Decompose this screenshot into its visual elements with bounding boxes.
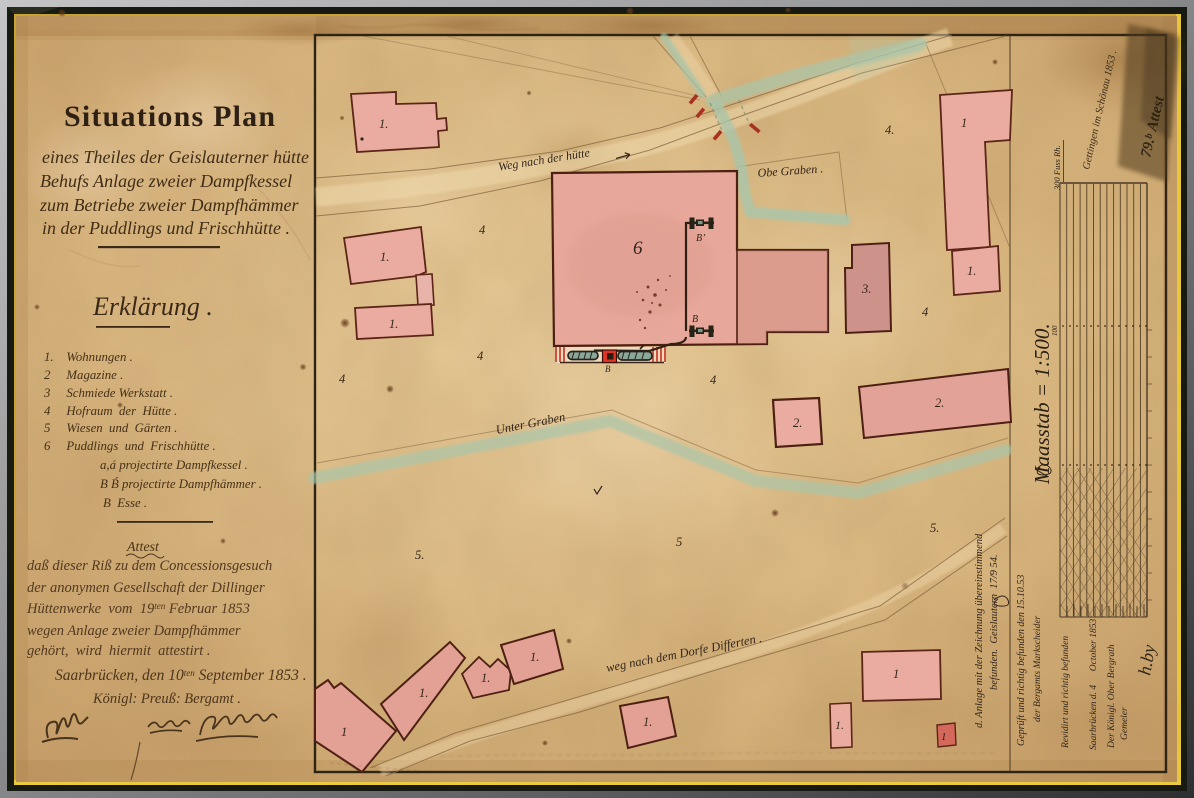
svg-text:Der Königl. Ober Bergrath: Der Königl. Ober Bergrath	[1107, 644, 1117, 749]
svg-text:B: B	[605, 364, 611, 374]
svg-text:befunden. Geislautern 17/9 5: befunden. Geislautern 17/9 54.	[989, 554, 1000, 690]
svg-text:1.: 1.	[481, 671, 490, 685]
svg-text:1.: 1.	[530, 650, 539, 664]
svg-text:October 1853: October 1853	[1089, 618, 1099, 676]
svg-text:der Bergamts Markscheider: der Bergamts Markscheider	[1033, 615, 1043, 722]
svg-text:1.: 1.	[379, 117, 388, 131]
svg-text:2.: 2.	[935, 396, 944, 410]
svg-text:4: 4	[710, 373, 716, 387]
svg-text:5: 5	[676, 535, 682, 549]
svg-text:4: 4	[922, 305, 928, 319]
svg-text:4: 4	[479, 223, 485, 237]
svg-text:2.: 2.	[793, 416, 802, 430]
svg-text:3.: 3.	[861, 282, 871, 296]
svg-text:4: 4	[339, 372, 345, 386]
svg-text:B: B	[692, 314, 698, 325]
svg-text:6: 6	[633, 238, 643, 259]
svg-text:Revidirt und richtig befunden: Revidirt und richtig befunden	[1060, 636, 1071, 749]
svg-text:4: 4	[477, 349, 483, 363]
svg-text:5.: 5.	[415, 548, 424, 562]
svg-text:1: 1	[893, 667, 899, 681]
svg-text:Gemeler: Gemeler	[1120, 707, 1130, 740]
svg-text:1.: 1.	[967, 264, 976, 278]
svg-text:1.: 1.	[643, 715, 652, 729]
svg-text:Maasstab = 1:500.: Maasstab = 1:500.	[1030, 323, 1054, 485]
svg-text:1.: 1.	[419, 686, 428, 700]
svg-text:d. Anlage mit der Zeichnung üb: d. Anlage mit der Zeichnung übereinstimm…	[974, 533, 985, 728]
svg-text:1: 1	[341, 725, 347, 739]
svg-text:Geprüft und richtig befunden d: Geprüft und richtig befunden den 15.10.5…	[1016, 575, 1027, 746]
svg-text:Saarbrücken d. 4: Saarbrücken d. 4	[1089, 685, 1099, 750]
svg-text:Bʼ: Bʼ	[696, 233, 706, 244]
svg-text:1: 1	[961, 116, 967, 130]
svg-text:300 Fuss Rh.: 300 Fuss Rh.	[1052, 145, 1062, 191]
svg-text:100: 100	[1051, 325, 1059, 336]
svg-text:1.: 1.	[389, 317, 398, 331]
svg-text:1: 1	[941, 731, 947, 743]
svg-text:1.: 1.	[380, 250, 389, 264]
svg-text:4.: 4.	[885, 123, 894, 137]
svg-text:5.: 5.	[930, 521, 939, 535]
svg-text:1.: 1.	[835, 718, 844, 732]
